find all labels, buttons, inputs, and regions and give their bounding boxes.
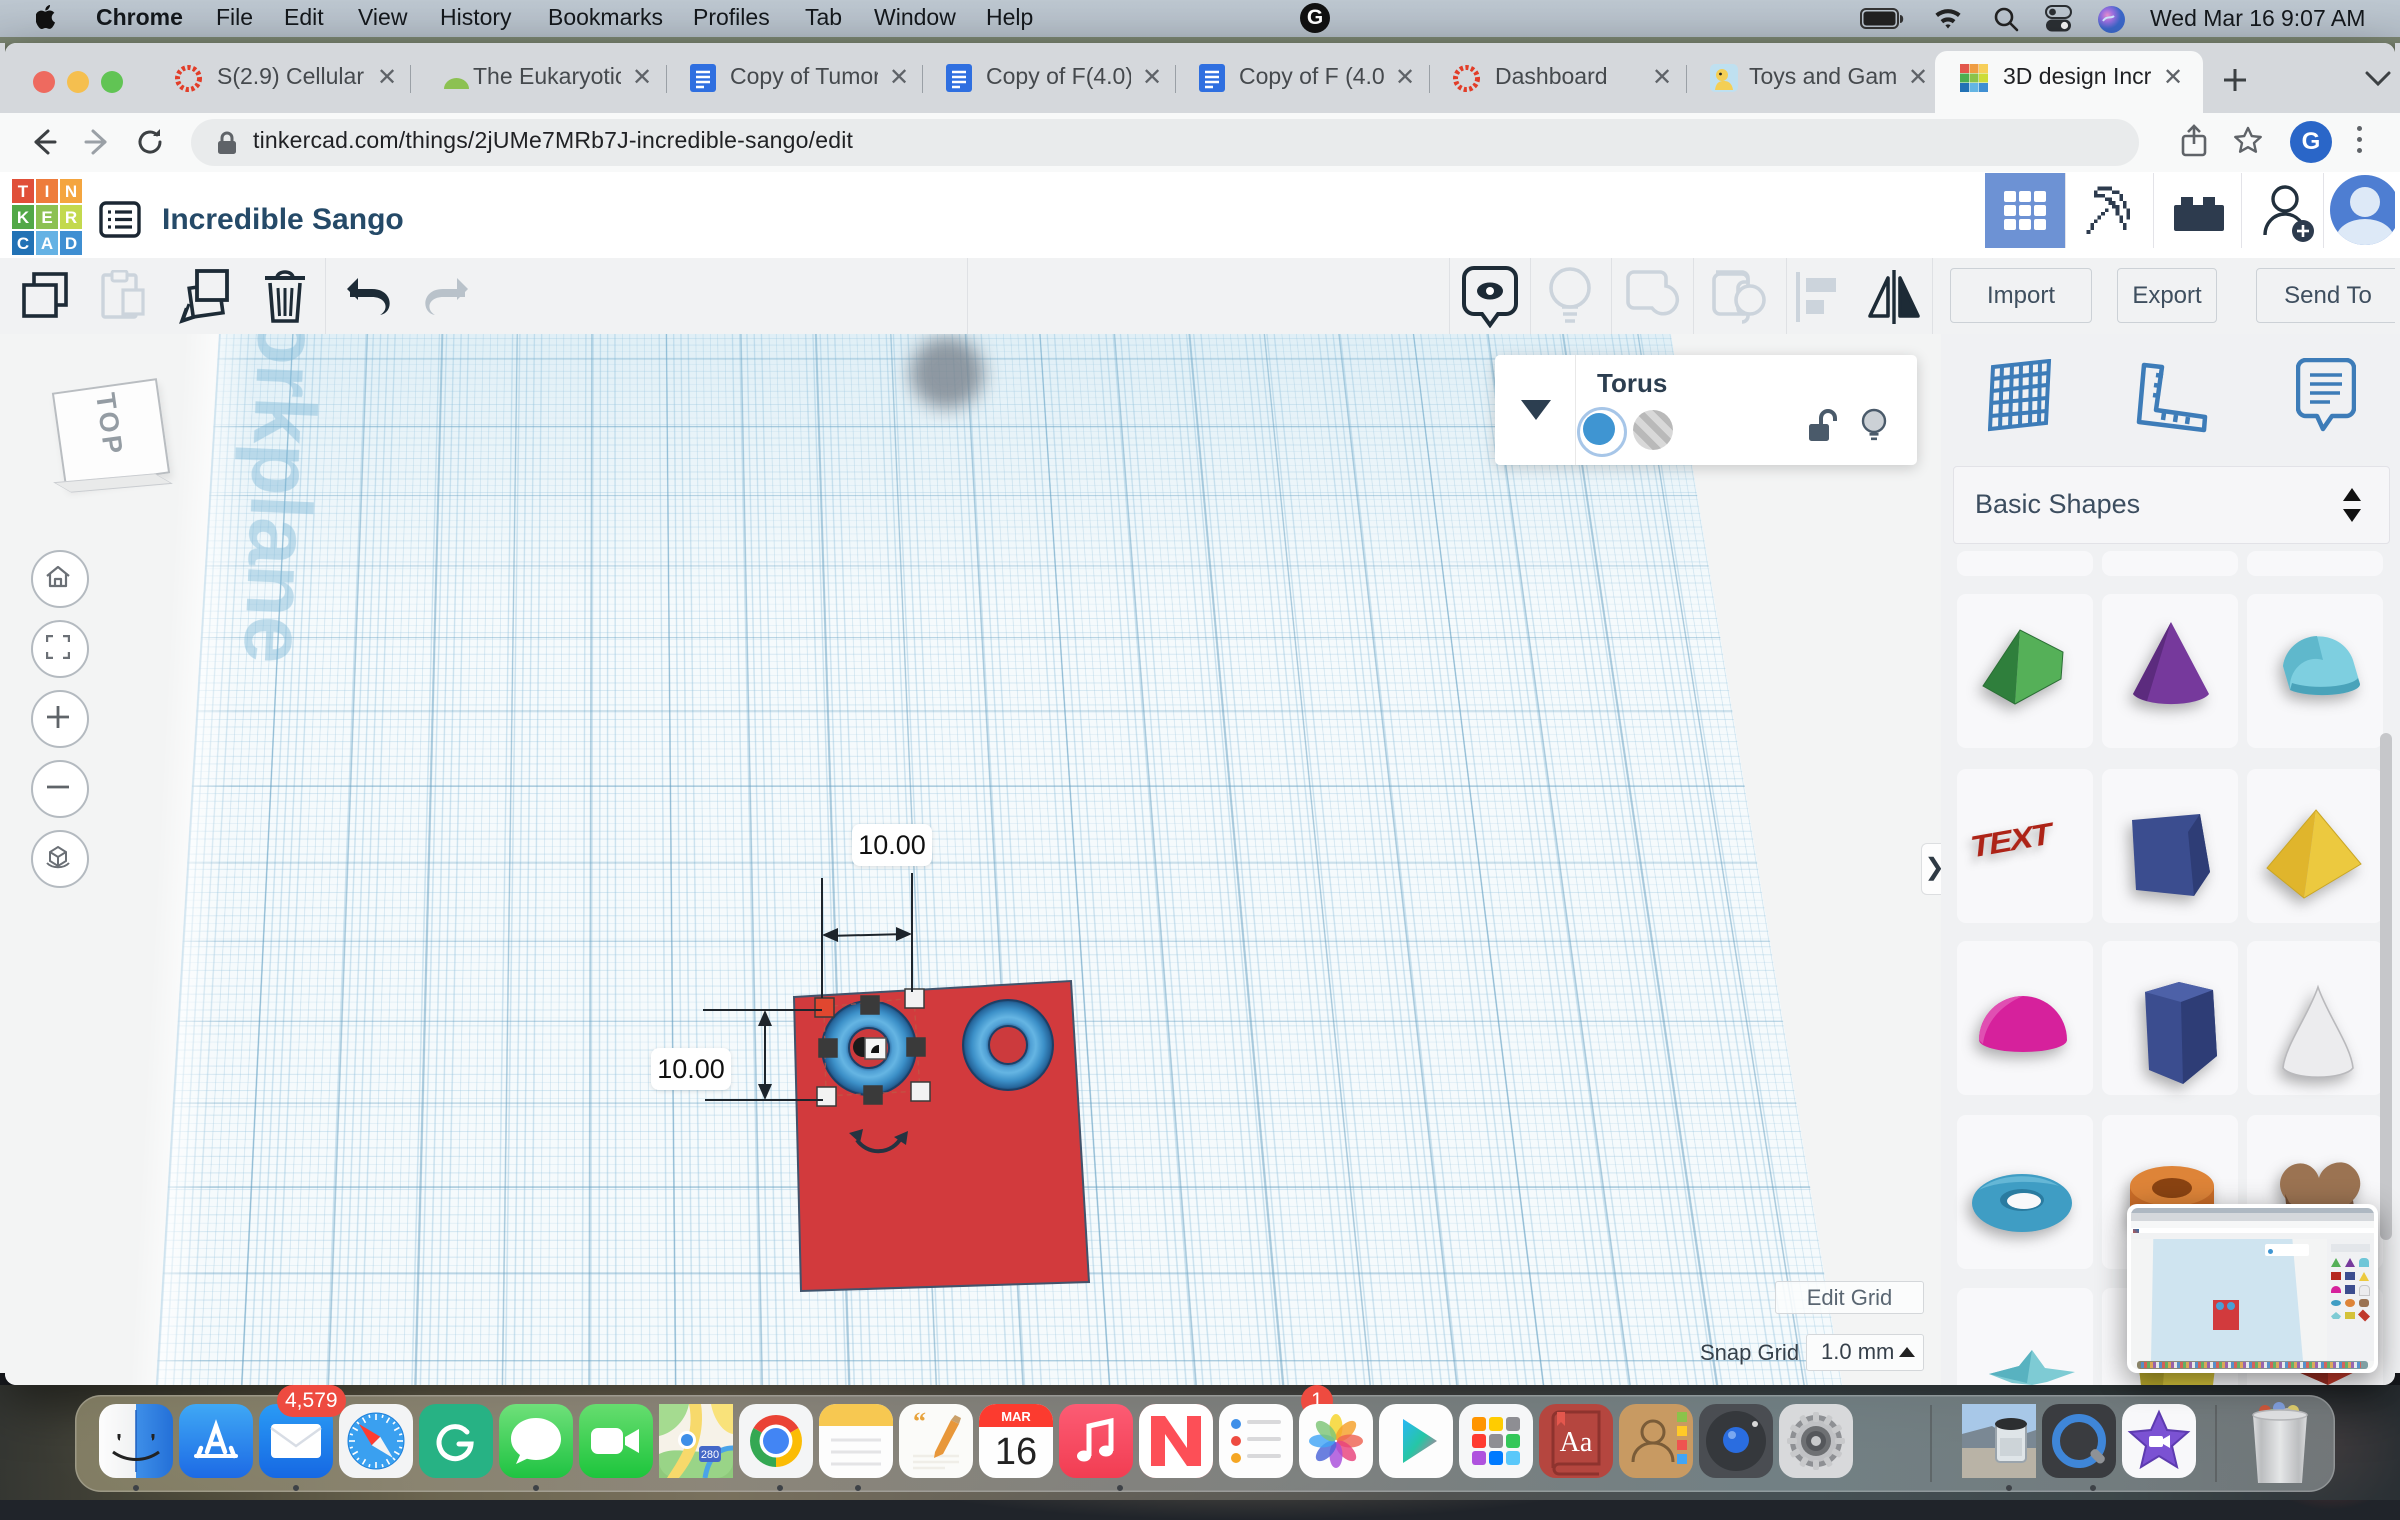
svg-text:C: C: [17, 234, 29, 253]
svg-text:R: R: [65, 208, 77, 227]
svg-text:D: D: [65, 234, 77, 253]
svg-text:A: A: [41, 234, 53, 253]
svg-text:E: E: [41, 208, 52, 227]
svg-text:Aa: Aa: [1560, 1427, 1593, 1458]
svg-text:N: N: [65, 182, 77, 201]
svg-text:MAR: MAR: [1001, 1409, 1031, 1424]
svg-text:280: 280: [701, 1449, 719, 1461]
svg-text:K: K: [17, 208, 30, 227]
svg-text:I: I: [45, 182, 50, 201]
svg-text:“: “: [913, 1407, 926, 1436]
svg-text:T: T: [18, 182, 29, 201]
svg-text:16: 16: [995, 1431, 1037, 1473]
